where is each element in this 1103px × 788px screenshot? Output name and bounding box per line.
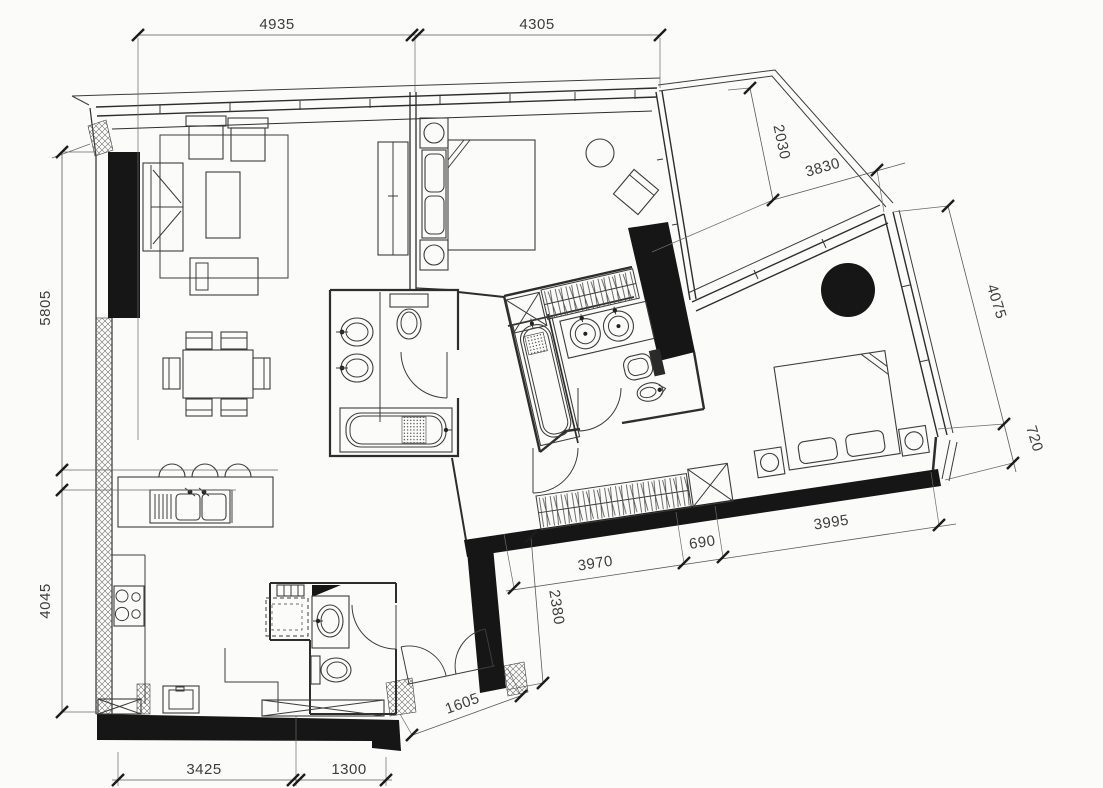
dim-label-5805: 5805 — [37, 290, 54, 325]
master-bedroom-furniture — [378, 118, 659, 270]
powder-toilet — [311, 656, 351, 684]
nightstand-top — [420, 118, 448, 148]
wall-entry — [466, 536, 506, 693]
door-powder — [352, 605, 396, 649]
dimensions: 4935 4305 5805 4045 3425 1300 1605 2030 … — [37, 16, 1046, 786]
dim-label-4075: 4075 — [983, 282, 1010, 321]
wall-bottom — [97, 714, 401, 751]
column-left — [108, 152, 140, 318]
kitchen — [98, 464, 384, 716]
door-bathroom-1 — [401, 352, 447, 398]
dim-label-3425: 3425 — [186, 761, 221, 778]
powder-room — [266, 585, 396, 684]
dim-label-3830: 3830 — [803, 155, 842, 181]
double-sink — [336, 318, 373, 382]
window-wall-top — [96, 88, 657, 129]
dim-label-690: 690 — [688, 532, 717, 553]
bidet — [635, 380, 667, 404]
dim-label-4045: 4045 — [37, 583, 54, 618]
door-corridor — [533, 448, 578, 493]
kitchen-sink — [150, 488, 230, 523]
terrace-and-bedroom2-walls — [656, 70, 957, 481]
dim-label-720: 720 — [1022, 424, 1046, 454]
dim-label-4305: 4305 — [519, 16, 554, 33]
dining-set — [163, 332, 270, 416]
dining-table — [183, 350, 253, 398]
sofa — [143, 163, 183, 251]
dim-label-1300: 1300 — [331, 761, 366, 778]
meter-box — [277, 585, 304, 596]
door-bathroom-2 — [578, 388, 621, 431]
nightstand-bottom — [420, 240, 448, 270]
master-bed — [422, 140, 535, 250]
bedroom-2-furniture — [742, 263, 929, 478]
dim-label-2030: 2030 — [769, 123, 793, 161]
dim-label-3995: 3995 — [813, 512, 850, 534]
armchair-1 — [186, 116, 226, 159]
toilet-2 — [622, 349, 666, 383]
tv-board — [190, 258, 258, 295]
powder-sink — [312, 596, 349, 648]
bed-2 — [742, 346, 929, 477]
bar-stools — [159, 464, 251, 477]
oven — [163, 686, 199, 713]
dim-label-4935: 4935 — [259, 16, 294, 33]
bathtub-1 — [340, 408, 452, 452]
floor-plan-drawing: 4935 4305 5805 4045 3425 1300 1605 2030 … — [0, 0, 1103, 788]
dim-label-2380: 2380 — [545, 588, 567, 626]
toilet-1 — [390, 294, 428, 339]
column-round — [821, 263, 875, 317]
chair-by-window — [613, 169, 658, 214]
floor-plan-sheet: 4935 4305 5805 4045 3425 1300 1605 2030 … — [0, 0, 1103, 788]
threshold-right — [504, 662, 528, 696]
coffee-table — [206, 172, 240, 238]
dim-label-1605: 1605 — [443, 690, 482, 718]
bathroom-2 — [512, 299, 667, 445]
dimension-ticks — [56, 29, 1019, 786]
walk-in-closet — [506, 269, 639, 333]
round-table — [586, 139, 614, 167]
cooktop — [114, 586, 144, 626]
dim-label-3970: 3970 — [577, 553, 614, 575]
cabinet-tall — [378, 142, 408, 255]
bathroom-1 — [336, 294, 452, 452]
living-room-furniture — [143, 116, 288, 295]
